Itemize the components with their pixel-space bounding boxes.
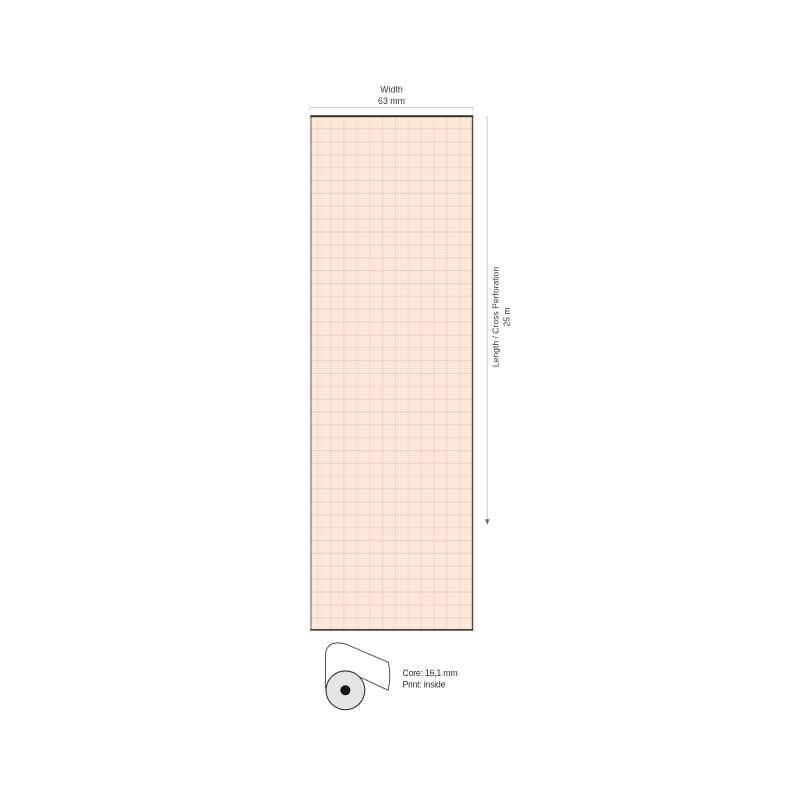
svg-text:Print: inside: Print: inside <box>403 679 446 689</box>
svg-text:Core: 16,1 mm: Core: 16,1 mm <box>403 668 458 678</box>
svg-text:63 mm: 63 mm <box>378 96 405 106</box>
svg-text:Length / Cross Perforation: Length / Cross Perforation <box>491 267 501 368</box>
svg-text:Width: Width <box>380 85 403 95</box>
svg-text:25 m: 25 m <box>502 307 512 326</box>
